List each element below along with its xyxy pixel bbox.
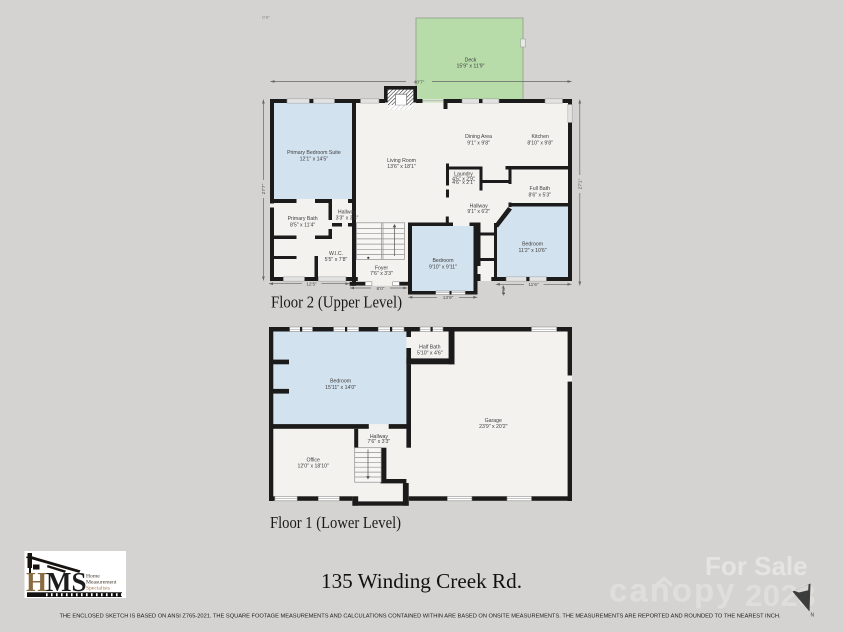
svg-text:27'7": 27'7": [261, 183, 267, 194]
svg-text:Floor 2 (Upper Level): Floor 2 (Upper Level): [271, 293, 402, 312]
svg-text:12'1" x 14'5": 12'1" x 14'5": [300, 156, 329, 162]
svg-text:Dining Area: Dining Area: [465, 134, 492, 140]
svg-text:15'9" x 11'9": 15'9" x 11'9": [456, 64, 484, 70]
svg-text:Bedroom: Bedroom: [522, 242, 543, 248]
svg-text:8'5" x 11'4": 8'5" x 11'4": [290, 222, 315, 228]
svg-text:9'1" x 6'2": 9'1" x 6'2": [467, 209, 490, 215]
svg-text:27'1": 27'1": [577, 178, 583, 189]
svg-text:Office: Office: [306, 458, 320, 464]
svg-text:12'5": 12'5": [306, 282, 317, 288]
svg-text:15'11" x 14'0": 15'11" x 14'0": [325, 385, 356, 391]
svg-text:23'9" x 20'2": 23'9" x 20'2": [479, 424, 508, 430]
svg-text:N: N: [811, 613, 815, 619]
svg-text:12'0" x 18'10": 12'0" x 18'10": [298, 464, 329, 470]
svg-text:9'1" x 9'8": 9'1" x 9'8": [467, 140, 490, 146]
svg-text:2'6": 2'6": [501, 286, 507, 294]
svg-text:W.I.C.: W.I.C.: [329, 251, 343, 257]
svg-text:40'7": 40'7": [414, 80, 425, 86]
svg-text:7'6" x 3'3": 7'6" x 3'3": [370, 271, 393, 277]
svg-text:THE ENCLOSED SKETCH IS BASED O: THE ENCLOSED SKETCH IS BASED ON ANSI Z76…: [59, 614, 780, 620]
svg-text:8'10" x 9'8": 8'10" x 9'8": [527, 140, 553, 146]
svg-text:135 Winding Creek Rd.: 135 Winding Creek Rd.: [321, 569, 522, 593]
svg-text:4'6" x 2'1": 4'6" x 2'1": [452, 180, 475, 186]
svg-text:Bedroom: Bedroom: [432, 258, 453, 264]
svg-text:8'6" x 5'3": 8'6" x 5'3": [528, 192, 551, 198]
svg-text:5'5" x 7'8": 5'5" x 7'8": [325, 257, 348, 263]
svg-text:Home: Home: [86, 574, 100, 580]
svg-text:13'9": 13'9": [443, 295, 454, 301]
svg-text:11'6": 11'6": [528, 282, 539, 288]
svg-text:8'0": 8'0": [377, 286, 385, 292]
svg-text:Full Bath: Full Bath: [530, 186, 551, 192]
svg-text:13'6" x 18'1": 13'6" x 18'1": [387, 164, 416, 170]
svg-text:3'3" x 3'6": 3'3" x 3'6": [336, 216, 359, 222]
svg-text:5'10" x 4'6": 5'10" x 4'6": [417, 351, 443, 357]
svg-text:Garage: Garage: [485, 418, 502, 424]
svg-text:11'2" x 10'6": 11'2" x 10'6": [519, 248, 547, 254]
svg-text:Measurement: Measurement: [86, 580, 117, 586]
svg-text:Kitchen: Kitchen: [532, 134, 549, 140]
svg-text:Primary Bedroom Suite: Primary Bedroom Suite: [287, 150, 341, 156]
svg-text:9'10" x 9'11": 9'10" x 9'11": [429, 264, 457, 270]
svg-text:0'9": 0'9": [262, 15, 270, 21]
svg-text:7'6" x 3'3": 7'6" x 3'3": [368, 439, 391, 445]
svg-text:Primary Bath: Primary Bath: [288, 216, 318, 222]
svg-text:Bedroom: Bedroom: [330, 379, 351, 385]
svg-text:Floor 1 (Lower Level): Floor 1 (Lower Level): [270, 513, 401, 532]
svg-text:canopy: canopy: [609, 572, 737, 609]
svg-text:Living Room: Living Room: [387, 158, 416, 164]
svg-text:Specialists: Specialists: [86, 586, 110, 592]
